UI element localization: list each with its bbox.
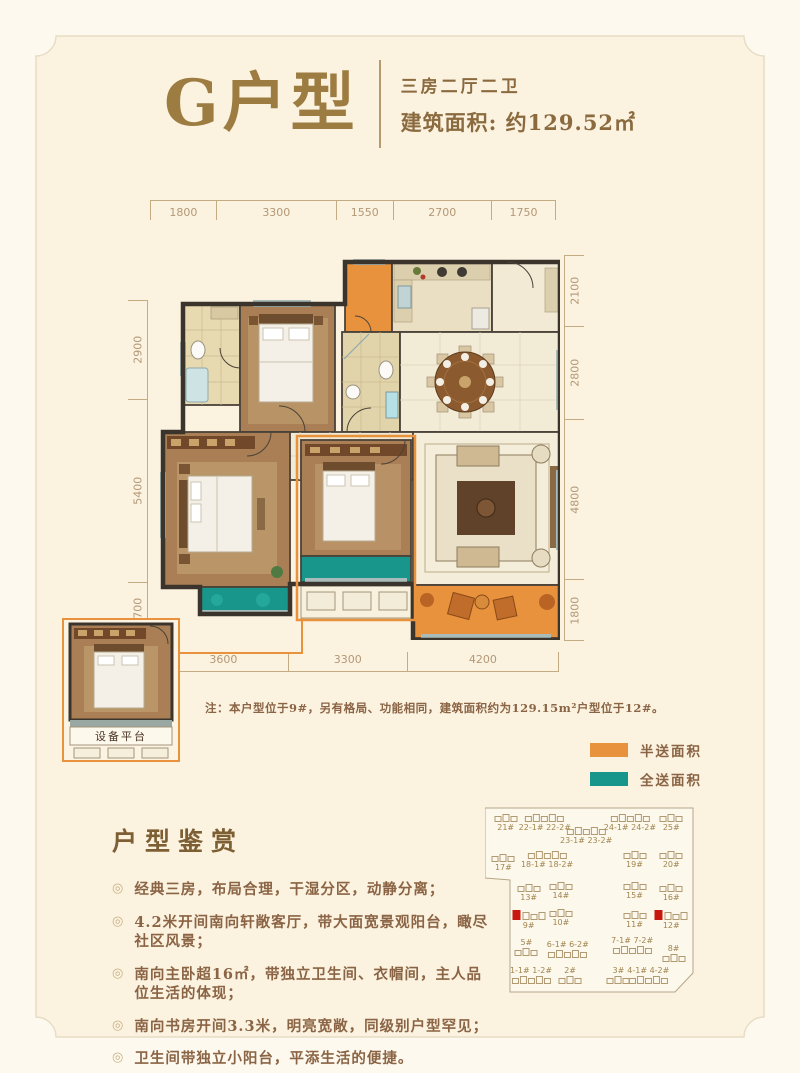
building-block [522,912,529,920]
dimension-segment: 3300 [288,652,407,672]
dimension-value: 2900 [130,336,145,364]
building-block [517,886,524,892]
building-block [512,978,519,984]
dimension-value: 1550 [351,205,379,220]
building-block [500,854,507,862]
building-footprint [512,910,545,920]
building-block [639,853,646,859]
site-building-14-: 14# [549,882,572,900]
building-footprint [655,910,688,920]
building-block [536,851,543,859]
building-footprint [492,854,515,862]
building-label: 16# [663,893,680,902]
highlighted-building-marker [655,910,663,920]
building-block [607,978,614,984]
building-label: 11# [626,920,643,929]
building-label: 1-1# 1-2# [510,966,552,975]
site-building-19-: 19# [623,851,646,869]
building-block [626,816,633,822]
building-label: 9# [523,921,535,930]
dimension-segment: 1550 [336,200,393,220]
bullet-icon: ◎ [112,1049,124,1069]
building-block [536,976,543,984]
feature-item: ◎卫生间带独立小阳台，平添生活的便捷。 [112,1049,492,1069]
building-footprint [567,827,606,835]
building-block [520,976,527,984]
building-footprint [559,976,582,984]
feature-text: 经典三房，布局合理，干湿分区，动静分离； [134,880,444,900]
building-block [502,814,509,822]
building-label: 18-1# 18-2# [521,860,573,869]
section-title: 户型鉴赏 [112,822,492,858]
dimension-segment: 3300 [216,200,336,220]
building-block [660,853,667,859]
room-kitchen [392,262,492,332]
dimension-segment: 2100 [564,255,584,326]
brochure-page: G户型 三房二厅二卫 建筑面积: 约129.52㎡ 18003300155027… [0,0,800,1073]
building-block [631,851,638,859]
room-foyer [492,262,560,332]
building-block [552,851,559,859]
building-block [681,912,688,920]
site-building-13-: 13# [517,884,540,902]
dimension-top: 18003300155027001750 [150,200,556,220]
building-block [634,814,641,822]
building-footprint [660,814,683,822]
feature-item: ◎4.2米开间南向轩敞客厅，带大面宽景观阳台，瞰尽社区风景； [112,913,492,952]
building-footprint [623,851,646,859]
building-footprint [548,950,587,958]
dimension-value: 2100 [567,277,582,305]
building-block [610,816,617,822]
site-building-20-: 20# [660,851,683,869]
site-building-8-: 8# [662,944,685,962]
dimension-value: 1800 [169,205,197,220]
feature-text: 南向书房开间3.3米，明亮宽敞，同级别户型罕见； [134,1017,488,1037]
dimension-segment: 4800 [564,419,584,579]
site-building-24-1--24-2-: 24-1# 24-2# [604,814,656,832]
equipment-platform-main [301,586,411,618]
floorplan [155,250,560,640]
building-block [549,884,556,890]
building-block [528,853,535,859]
building-footprint [517,884,540,892]
dimension-segment: 1800 [564,579,584,640]
dimension-value: 2700 [428,205,456,220]
building-block [565,884,572,890]
building-block [623,884,630,890]
equipment-platform-label: 设备平台 [95,729,147,743]
building-block [523,948,530,956]
building-block [575,827,582,835]
building-block [525,884,532,892]
highlighted-building-marker [512,910,520,920]
building-block [637,976,644,984]
building-block [668,814,675,822]
building-block [631,882,638,890]
inset-plan: 设备平台 [62,618,180,762]
building-block [613,948,620,954]
appreciation-section: 户型鉴赏 ◎经典三房，布局合理，干湿分区，动静分离；◎4.2米开间南向轩敞客厅，… [112,822,492,1073]
building-label: 25# [663,823,680,832]
bullet-icon: ◎ [112,965,124,1004]
building-footprint [660,851,683,859]
floorplan-note: 注：本户型位于9#，另有格局、功能相同，建筑面积约为129.15m²户型位于12… [205,700,664,716]
feature-item: ◎南向书房开间3.3米，明亮宽敞，同级别户型罕见； [112,1017,492,1037]
header-divider [379,60,381,148]
building-label: 21# [497,823,514,832]
building-block [629,978,636,984]
dimension-segment: 2900 [128,300,148,399]
building-footprint [528,851,567,859]
room-bedroom-2 [240,304,335,432]
dimension-value: 1750 [509,205,537,220]
dimension-value: 4200 [469,652,497,667]
building-block [557,816,564,822]
dimension-value: 3300 [262,205,290,220]
building-block [642,816,649,822]
building-block [544,853,551,859]
site-plan: 21#22-1# 22-2#23-1# 23-2#24-1# 24-2#25#1… [485,803,715,998]
building-block [541,816,548,822]
building-block [676,853,683,859]
site-building-15-: 15# [623,882,646,900]
legend-item-full-gift-area: 全送面积 [590,769,702,789]
site-building-17-: 17# [492,854,515,872]
site-building-12-: 12# [655,910,688,930]
building-block [639,884,646,890]
building-block [538,912,545,920]
building-block [530,914,537,920]
dimension-value: 2800 [567,359,582,387]
building-block [533,886,540,892]
building-block [676,816,683,822]
bullet-icon: ◎ [112,913,124,952]
building-block [645,978,652,984]
dimension-segment: 5400 [128,399,148,582]
building-block [528,978,535,984]
building-label: 6-1# 6-2# [547,940,589,949]
building-block [591,827,598,835]
building-block [549,814,556,822]
dimension-value: 3300 [334,652,362,667]
balcony-main-orange [413,585,560,638]
feature-text: 卫生间带独立小阳台，平添生活的便捷。 [134,1049,413,1069]
building-block [623,853,630,859]
dimension-left: 290054001700 [128,300,148,641]
building-block [557,882,564,890]
building-footprint [629,976,668,984]
site-building-9-: 9# [512,910,545,930]
building-block [515,950,522,956]
building-block [492,856,499,862]
legend-swatch-full-gift-area [590,772,628,786]
dimension-segment: 4200 [407,652,558,672]
building-label: 17# [495,863,512,872]
balcony-teal-master [200,587,290,614]
building-footprint [623,911,646,919]
dimension-segment: 2700 [393,200,491,220]
building-block [662,956,669,962]
building-footprint [494,814,517,822]
building-label: 12# [663,921,680,930]
dimension-bottom: 360033004200 [158,652,559,672]
building-label: 3# [612,966,624,975]
legend-label: 半送面积 [640,740,702,760]
building-label: 7-1# 7-2# [611,936,653,945]
building-label: 2# [564,966,576,975]
site-building-1-1--1-2-: 1-1# 1-2# [510,966,552,984]
building-block [556,950,563,958]
building-block [583,829,590,835]
building-footprint [613,946,652,954]
building-footprint [660,884,683,892]
building-block [660,816,667,822]
site-building-4-1--4-2-: 4-1# 4-2# [627,966,669,984]
building-label: 20# [663,860,680,869]
building-block [557,909,564,917]
building-block [564,952,571,958]
bullet-icon: ◎ [112,1017,124,1037]
building-block [560,853,567,859]
building-block [665,912,672,920]
plan-title: G户型 [164,72,359,136]
dimension-segment: 2800 [564,326,584,420]
room-config: 三房二厅二卫 [401,72,636,97]
building-block [549,911,556,917]
building-label: 8# [668,944,680,953]
building-block [629,948,636,954]
building-label: 19# [626,860,643,869]
room-study [301,440,411,556]
inset-connector-line [180,618,303,654]
building-block [615,976,622,984]
building-block [668,884,675,892]
feature-item: ◎经典三房，布局合理，干湿分区，动静分离； [112,880,492,900]
building-block [653,976,660,984]
site-building-2-: 2# [559,966,582,984]
building-block [575,978,582,984]
header: G户型 三房二厅二卫 建筑面积: 约129.52㎡ [0,60,800,148]
dimension-value: 5400 [130,477,145,505]
feature-text: 4.2米开间南向轩敞客厅，带大面宽景观阳台，瞰尽社区风景； [134,913,492,952]
bullet-icon: ◎ [112,880,124,900]
building-footprint [525,814,564,822]
site-buildings-layer: 21#22-1# 22-2#23-1# 23-2#24-1# 24-2#25#1… [485,803,715,998]
building-footprint [549,909,572,917]
site-building-5-: 5# [515,938,538,956]
dimension-segment: 1750 [491,200,555,220]
site-building-7-1--7-2-: 7-1# 7-2# [611,936,653,954]
building-block [567,976,574,984]
building-label: 5# [520,938,532,947]
building-block [572,950,579,958]
building-block [670,954,677,962]
building-label: 24-1# 24-2# [604,823,656,832]
building-block [668,851,675,859]
building-block [510,816,517,822]
building-block [508,856,515,862]
building-label: 23-1# 23-2# [560,836,612,845]
site-building-21-: 21# [494,814,517,832]
site-building-18-1--18-2-: 18-1# 18-2# [521,851,573,869]
site-building-25-: 25# [660,814,683,832]
building-block [678,956,685,962]
legend-label: 全送面积 [640,769,702,789]
building-footprint [512,976,551,984]
header-subtitle: 三房二厅二卫 建筑面积: 约129.52㎡ [401,72,636,137]
building-block [525,816,532,822]
dimension-value: 1800 [567,596,582,624]
building-block [531,950,538,956]
building-block [639,913,646,919]
dimension-segment: 1800 [150,200,216,220]
building-block [567,829,574,835]
building-label: 14# [552,891,569,900]
room-master-bedroom [163,432,290,587]
building-block [623,913,630,919]
building-block [676,886,683,892]
building-block [661,978,668,984]
room-dining [400,332,560,432]
building-footprint [662,954,685,962]
building-block [660,886,667,892]
building-block [565,911,572,917]
dimension-value: 3600 [209,652,237,667]
building-block [673,914,680,920]
feature-list: ◎经典三房，布局合理，干湿分区，动静分离；◎4.2米开间南向轩敞客厅，带大面宽景… [112,880,492,1069]
building-block [637,946,644,954]
building-block [544,978,551,984]
building-footprint [515,948,538,956]
legend-item-half-gift-area: 半送面积 [590,740,702,760]
building-label: 15# [626,891,643,900]
building-footprint [623,882,646,890]
site-building-6-1--6-2-: 6-1# 6-2# [547,940,589,958]
room-living [413,432,560,585]
feature-text: 南向主卧超16㎡，带独立卫生间、衣帽间，主人品位生活的体现； [134,965,492,1004]
room-bathroom-2 [342,332,400,432]
building-block [618,814,625,822]
building-block [580,952,587,958]
building-block [494,816,501,822]
built-area: 建筑面积: 约129.52㎡ [401,107,636,137]
building-label: 4-1# 4-2# [627,966,669,975]
building-footprint [549,882,572,890]
room-bathroom-1 [183,304,240,405]
legend-swatch-half-gift-area [590,743,628,757]
building-block [631,911,638,919]
building-block [548,952,555,958]
site-building-16-: 16# [660,884,683,902]
building-block [621,946,628,954]
building-footprint [610,814,649,822]
site-building-11-: 11# [623,911,646,929]
dimension-right: 2100280048001800 [564,255,584,641]
building-block [559,978,566,984]
room-flex-balcony-orange [345,262,392,332]
feature-item: ◎南向主卧超16㎡，带独立卫生间、衣帽间，主人品位生活的体现； [112,965,492,1004]
building-block [533,814,540,822]
building-label: 10# [552,918,569,927]
dimension-value: 4800 [567,486,582,514]
building-block [645,948,652,954]
inset-plan-drawing: 设备平台 [64,620,178,760]
site-building-10-: 10# [549,909,572,927]
building-label: 13# [520,893,537,902]
legend: 半送面积全送面积 [590,740,702,798]
